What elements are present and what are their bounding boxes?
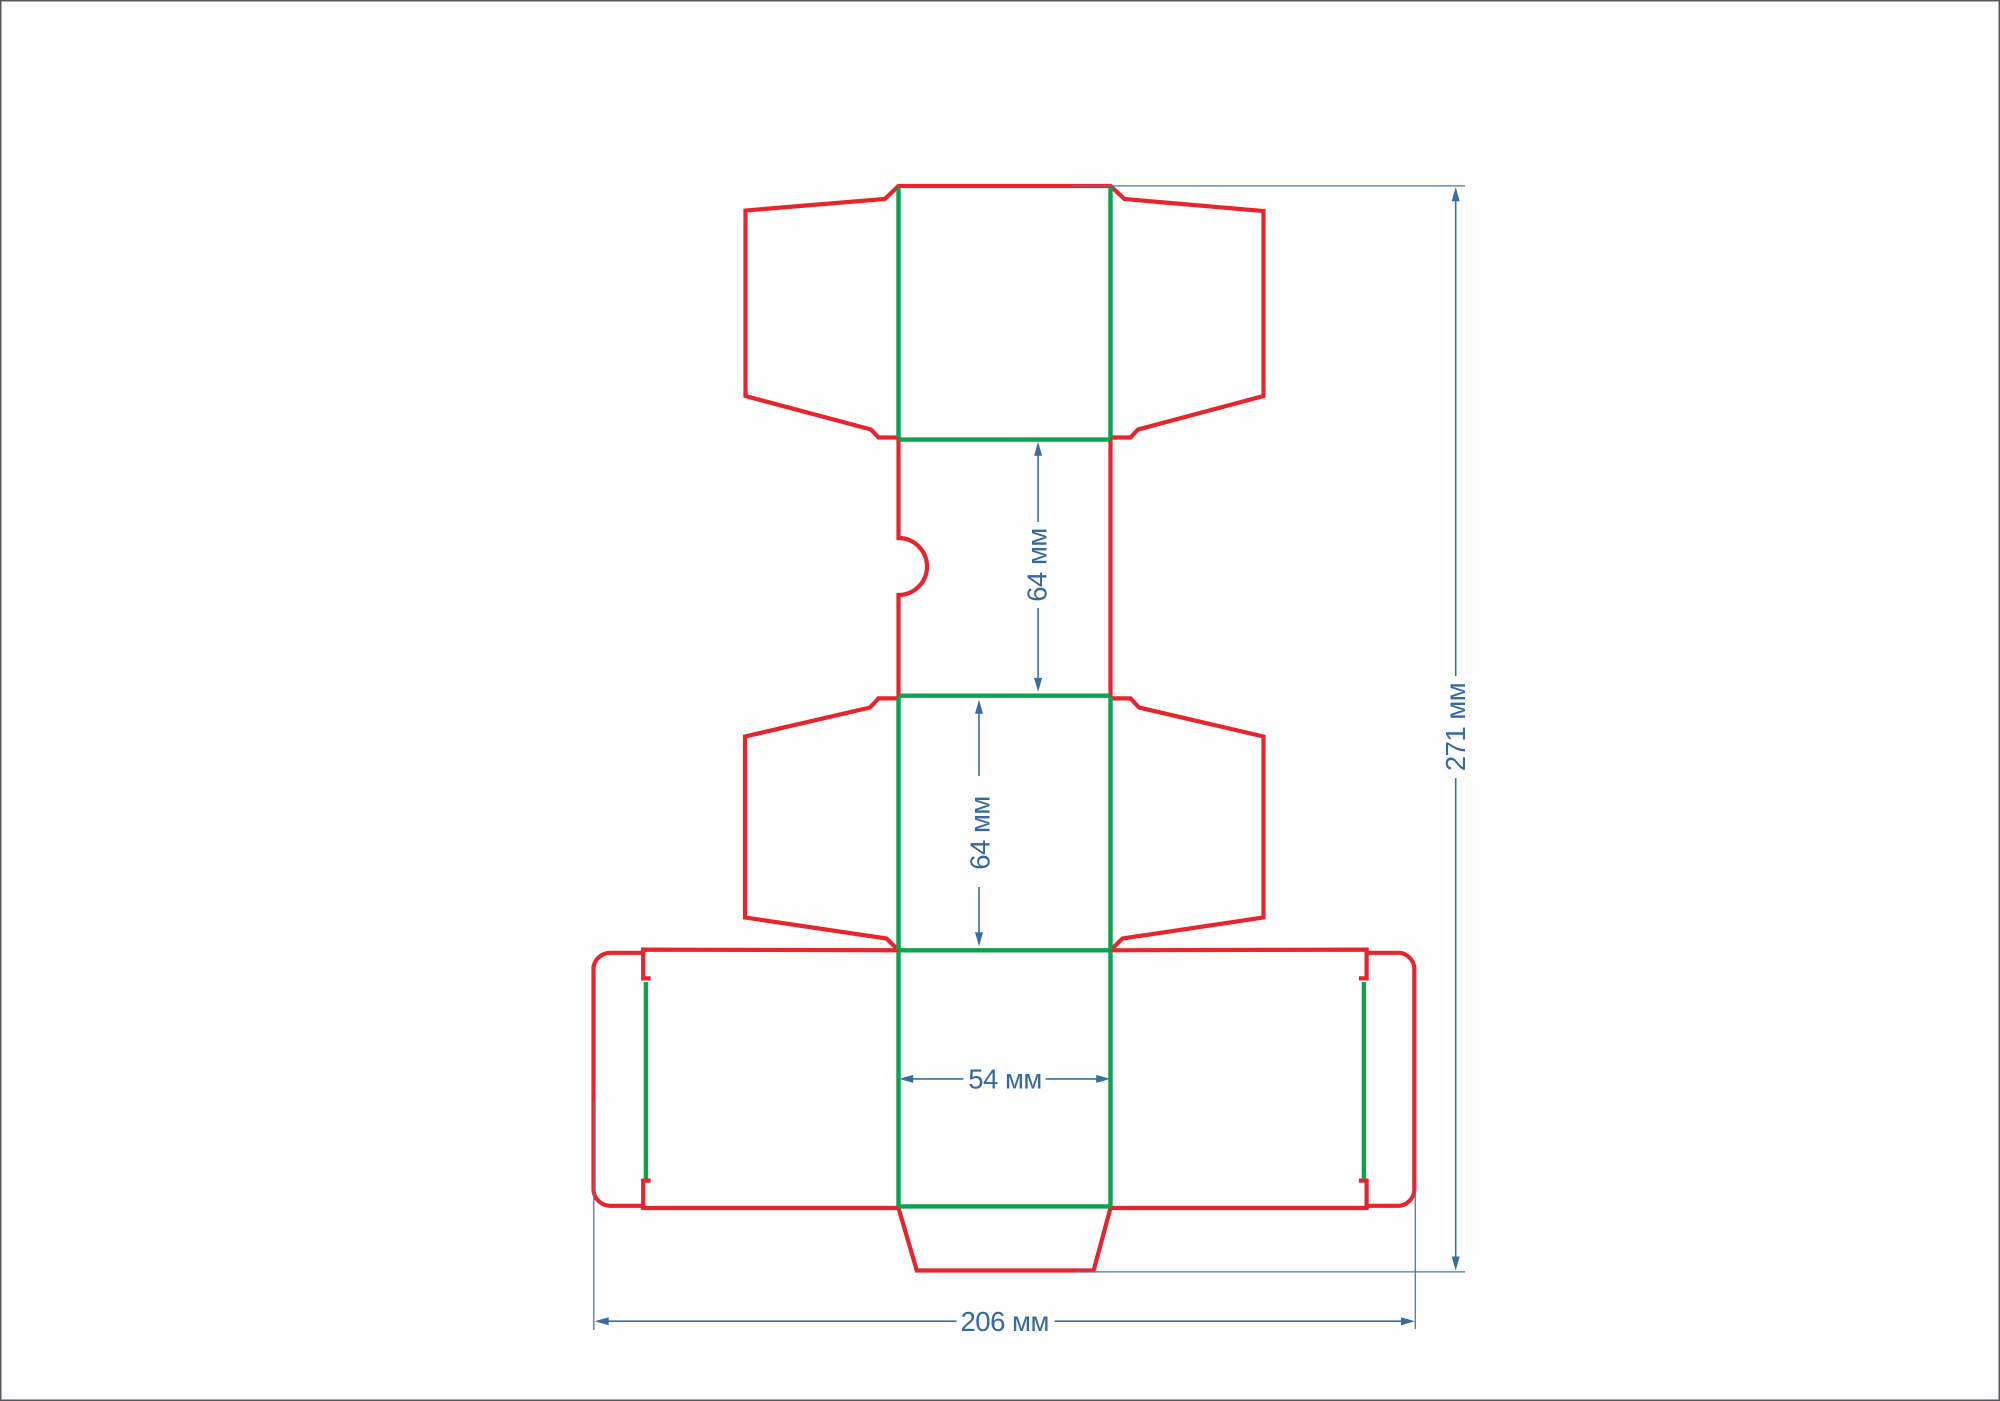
svg-text:271 мм: 271 мм bbox=[1440, 683, 1471, 771]
svg-text:206 мм: 206 мм bbox=[961, 1306, 1049, 1337]
svg-text:64 мм: 64 мм bbox=[965, 796, 996, 870]
svg-text:54 мм: 54 мм bbox=[968, 1064, 1042, 1095]
svg-text:64 мм: 64 мм bbox=[1022, 528, 1053, 602]
